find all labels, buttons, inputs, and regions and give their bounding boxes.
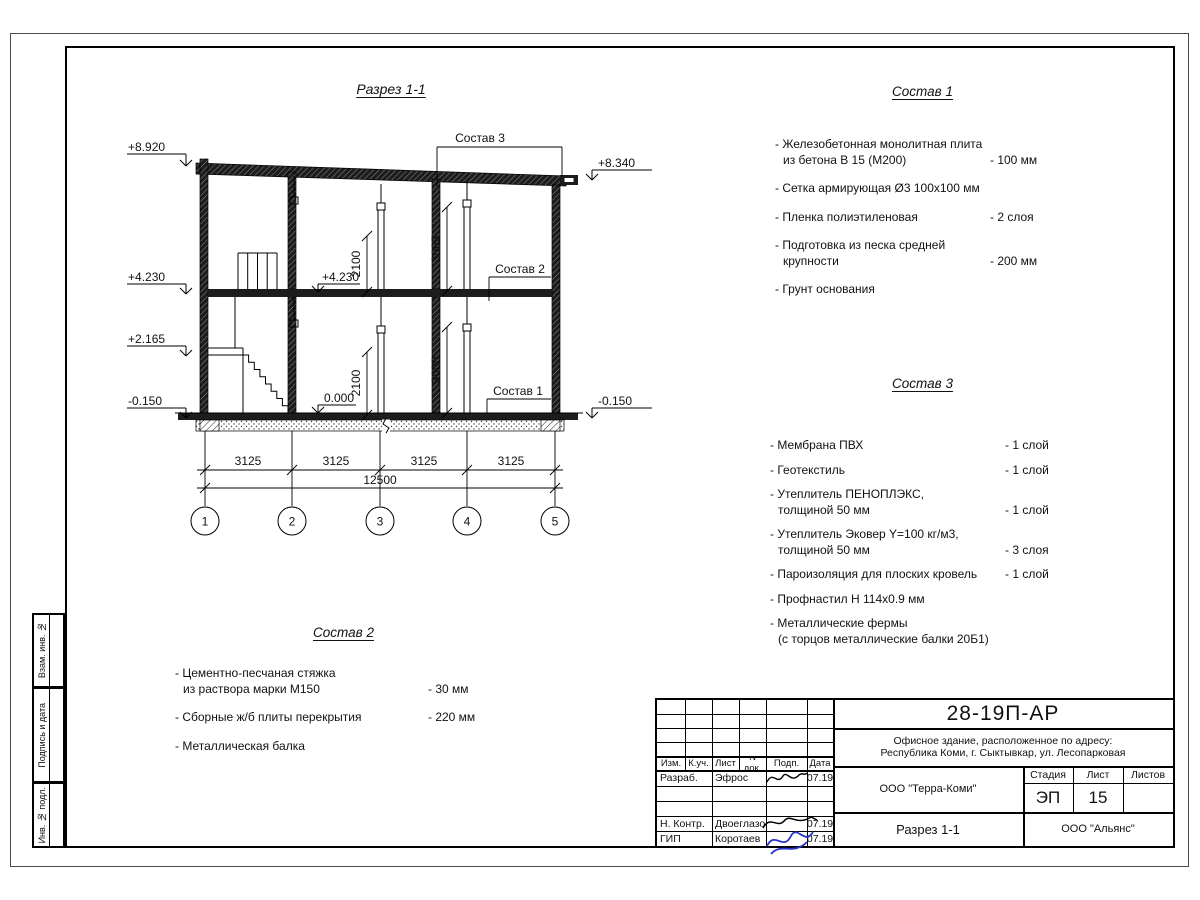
margin-box-label-cell: Подпись и дата [34, 689, 50, 781]
tb-role-nkontr: Н. Контр. [657, 816, 712, 831]
drawing-sheet: +8.920 +4.230 +2.165 -0.150 +8.340 [0, 0, 1200, 900]
tb-sheets-label: Листов [1123, 766, 1173, 783]
signature-razrab [765, 768, 809, 788]
sostav2-heading: Состав 2 [281, 625, 406, 640]
list-item: - Цементно-песчаная стяжкаиз раствора ма… [175, 666, 485, 697]
dim-floor2-clear: 2100 [349, 250, 363, 277]
tb-sheet-label: Лист [1073, 766, 1123, 783]
signature-nkontr [759, 812, 821, 860]
list-item: - Металлическая балка [175, 739, 485, 755]
tb-role-gip: ГИП [657, 831, 712, 846]
wall-mid-upper [432, 179, 440, 289]
ground-slab [178, 413, 578, 420]
elevation-value: +4.230 [128, 270, 165, 284]
roof-beam-end-core [565, 178, 574, 182]
wall-axis2-lower [288, 297, 296, 413]
tb-stage-label: Стадия [1023, 766, 1073, 783]
tb-col-izm: Изм. [657, 756, 685, 770]
tb-date-razrab: 07.19 [807, 770, 833, 786]
staircase [208, 253, 288, 413]
sostav1-list: - Железобетонная монолитная плитаиз бето… [775, 137, 1055, 298]
elevation-value: +2.165 [128, 332, 165, 346]
tb-line [657, 714, 833, 715]
margin-box-podpis: Подпись и дата [32, 687, 65, 783]
tb-name-nkontr: Двоеглазов [712, 816, 766, 831]
list-item: - Геотекстиль - 1 слой [770, 463, 1070, 479]
tb-stage-value: ЭП [1023, 783, 1073, 812]
list-item: - Сборные ж/б плиты перекрытия - 220 мм [175, 710, 485, 726]
elevation-value: +8.920 [128, 140, 165, 154]
tb-role-razrab: Разраб. [657, 770, 712, 786]
tb-col-list: Лист [712, 756, 739, 770]
callout-sostav2-label: Состав 2 [495, 262, 545, 276]
wall-axis2-upper [288, 172, 296, 289]
tb-col-data: Дата [807, 756, 833, 770]
tb-col-ndok: N док. [739, 756, 766, 770]
tb-col-kuch: К.уч. [685, 756, 712, 770]
tb-line [657, 801, 833, 802]
title-block: Изм. К.уч. Лист N док. Подп. Дата Разраб… [655, 698, 1175, 848]
tb-name-gip: Коротаев [712, 831, 766, 846]
axis-number-2: 2 [289, 515, 296, 529]
signature-gip [767, 832, 813, 854]
callout-sostav3-label: Состав 3 [455, 131, 505, 145]
margin-box-blank-cell [50, 689, 63, 781]
margin-label-podpis: Подпись и дата [37, 703, 47, 768]
wall-mid-lower [432, 297, 440, 413]
tb-doc-number: 28-19П-АР [833, 700, 1173, 728]
dim-floor1-clear: 2100 [349, 369, 363, 396]
axis-number-3: 3 [377, 515, 384, 529]
tb-project-line2: Республика Коми, г. Сыктывкар, ул. Лесоп… [881, 747, 1126, 759]
elevation-roof-right: +8.340 [586, 156, 652, 180]
sostav1-heading: Состав 1 [860, 84, 985, 99]
elevation-stair-left: +2.165 [127, 332, 192, 356]
margin-label-inv: Инв. № подл. [37, 787, 47, 843]
tb-org: ООО "Терра-Коми" [833, 766, 1023, 812]
stair-railing [238, 253, 277, 289]
dim-floor2-height: 3065 [429, 235, 443, 262]
list-item: - Мембрана ПВХ - 1 слой [770, 438, 1070, 454]
elevation-base-left: -0.150 [127, 394, 192, 418]
list-item: - Железобетонная монолитная плитаиз бето… [775, 137, 1055, 168]
wall-right [552, 185, 560, 413]
axis-number-5: 5 [552, 515, 559, 529]
elevation-value: +8.340 [598, 156, 635, 170]
bedding-end-right [541, 420, 560, 431]
floor-slab [208, 289, 552, 297]
wall-left [200, 159, 208, 413]
elevation-roof-left: +8.920 [127, 140, 192, 166]
tb-sheet-title: Разрез 1-1 [833, 812, 1023, 846]
tb-project: Офисное здание, расположенное по адресу:… [833, 728, 1173, 766]
tb-sheets-value [1123, 783, 1173, 812]
tb-line [657, 742, 833, 743]
margin-label-vzam: Взам. инв. № [37, 622, 47, 678]
dim-bay-1: 3125 [235, 454, 262, 468]
tb-sheet-value: 15 [1073, 783, 1123, 812]
section-title: Разрез 1-1 [336, 81, 446, 97]
axis-number-4: 4 [464, 515, 471, 529]
elevation-base-right: -0.150 [586, 394, 652, 418]
elevation-value: -0.150 [598, 394, 632, 408]
margin-box-blank-cell [50, 784, 63, 846]
bottom-dimensions: 3125 3125 3125 3125 12500 1 2 3 4 5 [191, 431, 569, 535]
list-item: - Пароизоляция для плоских кровель - 1 с… [770, 567, 1070, 583]
dim-bay-3: 3125 [411, 454, 438, 468]
list-item: - Металлические фермы(с торцов металличе… [770, 616, 1070, 647]
roof-slab [196, 163, 566, 186]
tb-project-line1: Офисное здание, расположенное по адресу: [894, 735, 1113, 747]
margin-box-vzam: Взам. инв. № [32, 613, 65, 688]
dim-total: 12500 [363, 473, 397, 487]
margin-box-inv: Инв. № подл. [32, 782, 65, 848]
margin-box-label-cell: Инв. № подл. [34, 784, 50, 846]
tb-name-razrab: Эфрос [712, 770, 766, 786]
axis-number-1: 1 [202, 515, 209, 529]
callout-sostav1-label: Состав 1 [493, 384, 543, 398]
tb-line [657, 728, 833, 729]
list-item: - Сетка армирующая Ø3 100х100 мм [775, 181, 1055, 197]
tb-contractor: ООО "Альянс" [1023, 812, 1173, 846]
margin-box-label-cell: Взам. инв. № [34, 615, 50, 686]
dim-floor1-height: 3000 [429, 356, 443, 383]
sostav3-list: - Мембрана ПВХ - 1 слой - Геотекстиль - … [770, 438, 1070, 647]
sostav2-list: - Цементно-песчаная стяжкаиз раствора ма… [175, 666, 485, 754]
dim-bay-4: 3125 [498, 454, 525, 468]
elevation-floor2-left: +4.230 [127, 270, 192, 294]
bedding-strip [196, 420, 564, 431]
elevation-value: -0.150 [128, 394, 162, 408]
list-item: - Утеплитель ПЕНОПЛЭКС,толщиной 50 мм - … [770, 487, 1070, 518]
axis-bubbles: 1 2 3 4 5 [191, 507, 569, 535]
list-item: - Подготовка из песка среднейкрупности -… [775, 238, 1055, 269]
list-item: - Профнастил Н 114х0.9 мм [770, 592, 1070, 608]
list-item: - Утеплитель Эковер Y=100 кг/м3,толщиной… [770, 527, 1070, 558]
bedding-end-left [200, 420, 219, 431]
sostav3-heading: Состав 3 [860, 376, 985, 391]
stair-steps [243, 355, 288, 413]
list-item: - Пленка полиэтиленовая - 2 слоя [775, 210, 1055, 226]
dim-bay-2: 3125 [323, 454, 350, 468]
list-item: - Грунт основания [775, 282, 1055, 298]
margin-box-blank-cell [50, 615, 63, 686]
